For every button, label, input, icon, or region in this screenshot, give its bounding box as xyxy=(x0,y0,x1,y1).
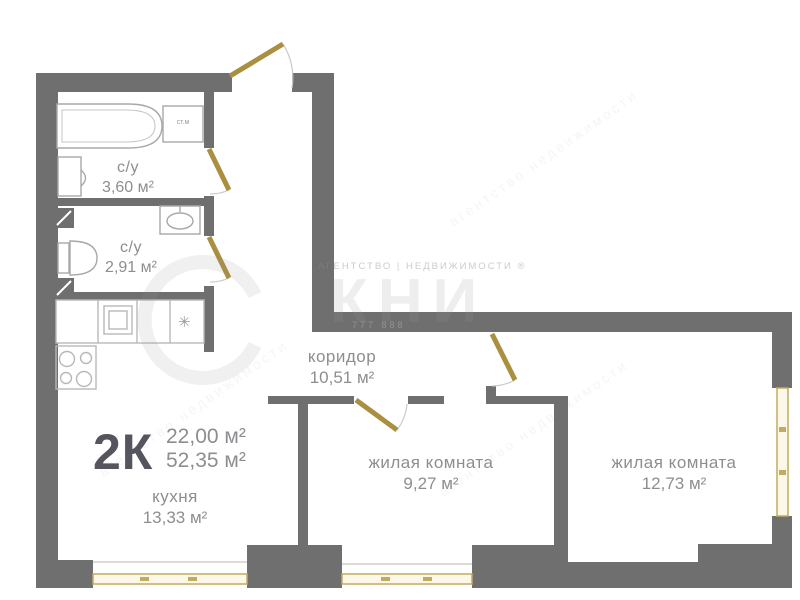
window-room2 xyxy=(777,388,788,516)
bath2-door-arc xyxy=(210,278,229,282)
wall-bottom-1 xyxy=(36,560,93,588)
room-name: с/у xyxy=(105,238,157,258)
stove-burner xyxy=(81,353,92,364)
stove-burner xyxy=(77,372,92,387)
room-area: 2,91 м² xyxy=(105,258,157,278)
entry-door-arc xyxy=(283,44,293,88)
floor-plan: с/у 3,60 м² с/у 2,91 м² коридор 10,51 м²… xyxy=(0,0,800,600)
stove-burner xyxy=(60,352,75,367)
room-label-kitchen: кухня 13,33 м² xyxy=(143,486,208,529)
wall-bath1-bottom xyxy=(56,198,204,206)
total-area: 52,35 м² xyxy=(166,449,246,473)
washbasin-bath1 xyxy=(58,157,81,196)
kitchen-sink-inner xyxy=(109,311,127,329)
room-name: кухня xyxy=(143,486,208,507)
watermark-phone: 777 888 xyxy=(352,320,406,330)
wall-top-left xyxy=(36,73,232,92)
window-tick xyxy=(779,427,786,432)
room-name: коридор xyxy=(308,346,376,367)
washing-machine-label: ст.м xyxy=(177,119,190,126)
window-kitchen xyxy=(93,574,247,584)
room-label-corridor: коридор 10,51 м² xyxy=(308,346,376,389)
room-label-living2: жилая комната 12,73 м² xyxy=(612,452,737,495)
window-room1 xyxy=(342,574,472,584)
room-label-bath2: с/у 2,91 м² xyxy=(105,238,157,278)
bathtub xyxy=(57,104,162,148)
room1-door-arc xyxy=(397,404,407,430)
wall-bottom-4 xyxy=(568,562,698,588)
wall-bath-right-a xyxy=(204,92,214,148)
window-tick xyxy=(423,577,432,581)
wall-kitchen-room1 xyxy=(298,404,308,562)
wall-right-upper xyxy=(772,312,792,388)
wall-bath2-bottom xyxy=(56,292,204,300)
wall-bath-right-b xyxy=(204,196,214,236)
room-area: 10,51 м² xyxy=(308,367,376,388)
wall-corridor-a xyxy=(268,396,354,404)
toilet-tank xyxy=(58,243,69,273)
wall-door-nub xyxy=(486,386,496,396)
room-name: жилая комната xyxy=(612,452,737,473)
room-area: 12,73 м² xyxy=(612,473,737,494)
bath1-door-arc xyxy=(210,190,229,194)
wall-bottom-5 xyxy=(698,544,792,588)
wall-left xyxy=(36,73,58,588)
bath1-door-leaf xyxy=(209,149,229,190)
room-area: 13,33 м² xyxy=(143,507,208,528)
window-tick xyxy=(381,577,390,581)
window-tick xyxy=(188,577,197,581)
stove-burner xyxy=(61,373,72,384)
window-tick xyxy=(140,577,149,581)
room2-door-leaf xyxy=(492,334,515,380)
wall-bottom-3 xyxy=(472,545,568,588)
room-label-bath1: с/у 3,60 м² xyxy=(102,158,154,198)
snowflake-icon: ✳ xyxy=(178,313,191,331)
entry-door-leaf xyxy=(230,44,283,76)
wall-corridor-c xyxy=(486,396,556,404)
toilet-bowl xyxy=(70,241,97,275)
window-tick xyxy=(779,470,786,475)
stove xyxy=(56,346,96,389)
wall-corridor-b xyxy=(408,396,444,404)
room1-door-leaf xyxy=(356,400,397,430)
wall-bath-right-c xyxy=(204,286,214,352)
room-name: с/у xyxy=(102,158,154,178)
wall-bottom-2 xyxy=(247,545,342,588)
room-area: 3,60 м² xyxy=(102,178,154,198)
room2-door-arc xyxy=(492,380,515,386)
